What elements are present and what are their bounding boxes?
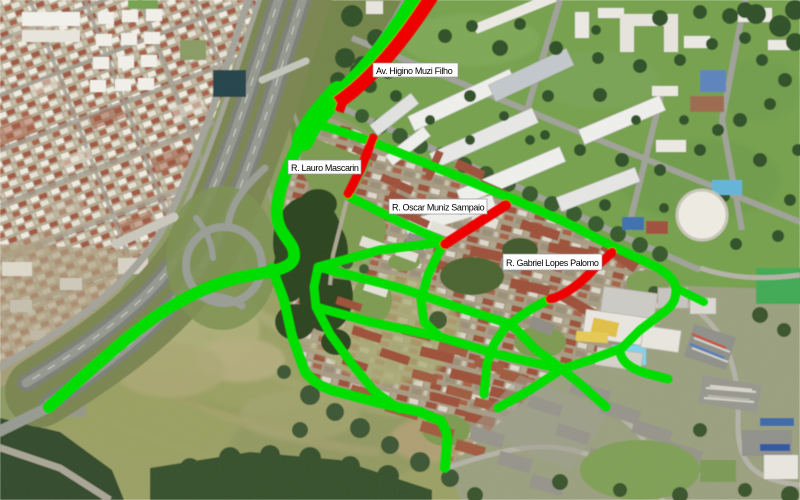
svg-text:Av. Higino Muzi Filho: Av. Higino Muzi Filho [376, 66, 453, 76]
svg-text:R. Oscar Muniz Sampaio: R. Oscar Muniz Sampaio [392, 203, 485, 213]
svg-text:R. Gabriel Lopes Palomo: R. Gabriel Lopes Palomo [506, 258, 599, 268]
svg-text:R. Lauro Mascarin: R. Lauro Mascarin [291, 163, 359, 173]
